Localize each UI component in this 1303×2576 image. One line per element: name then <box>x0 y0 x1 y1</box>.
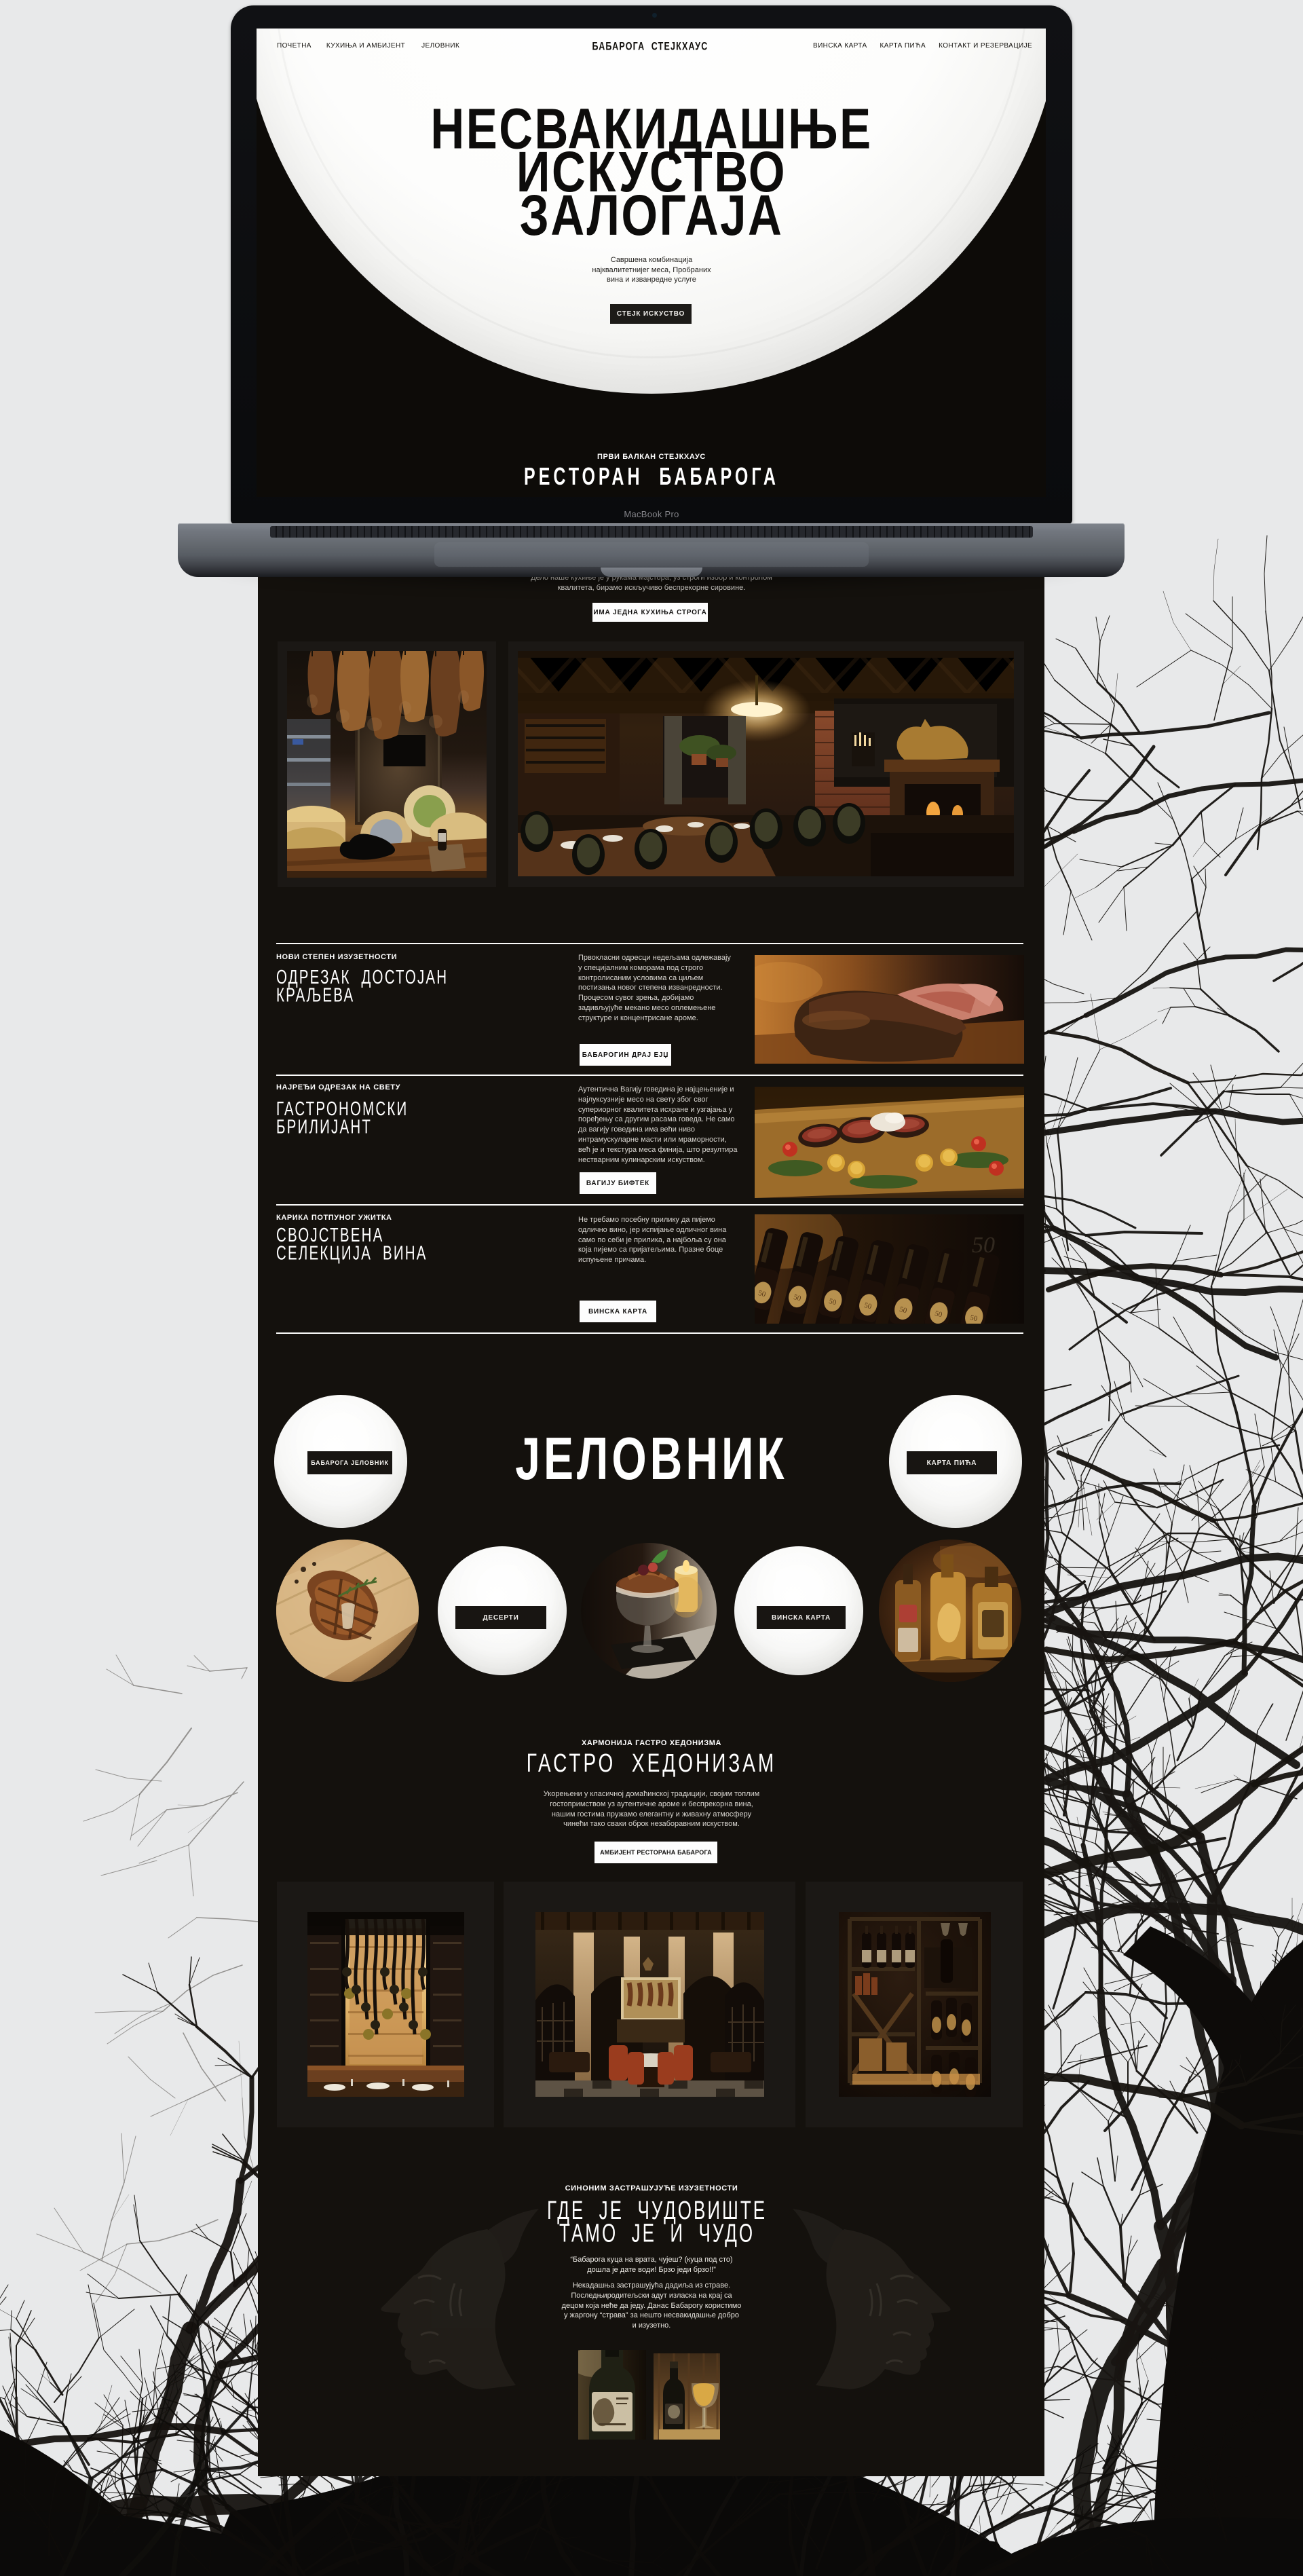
svg-text:50: 50 <box>972 1233 995 1258</box>
